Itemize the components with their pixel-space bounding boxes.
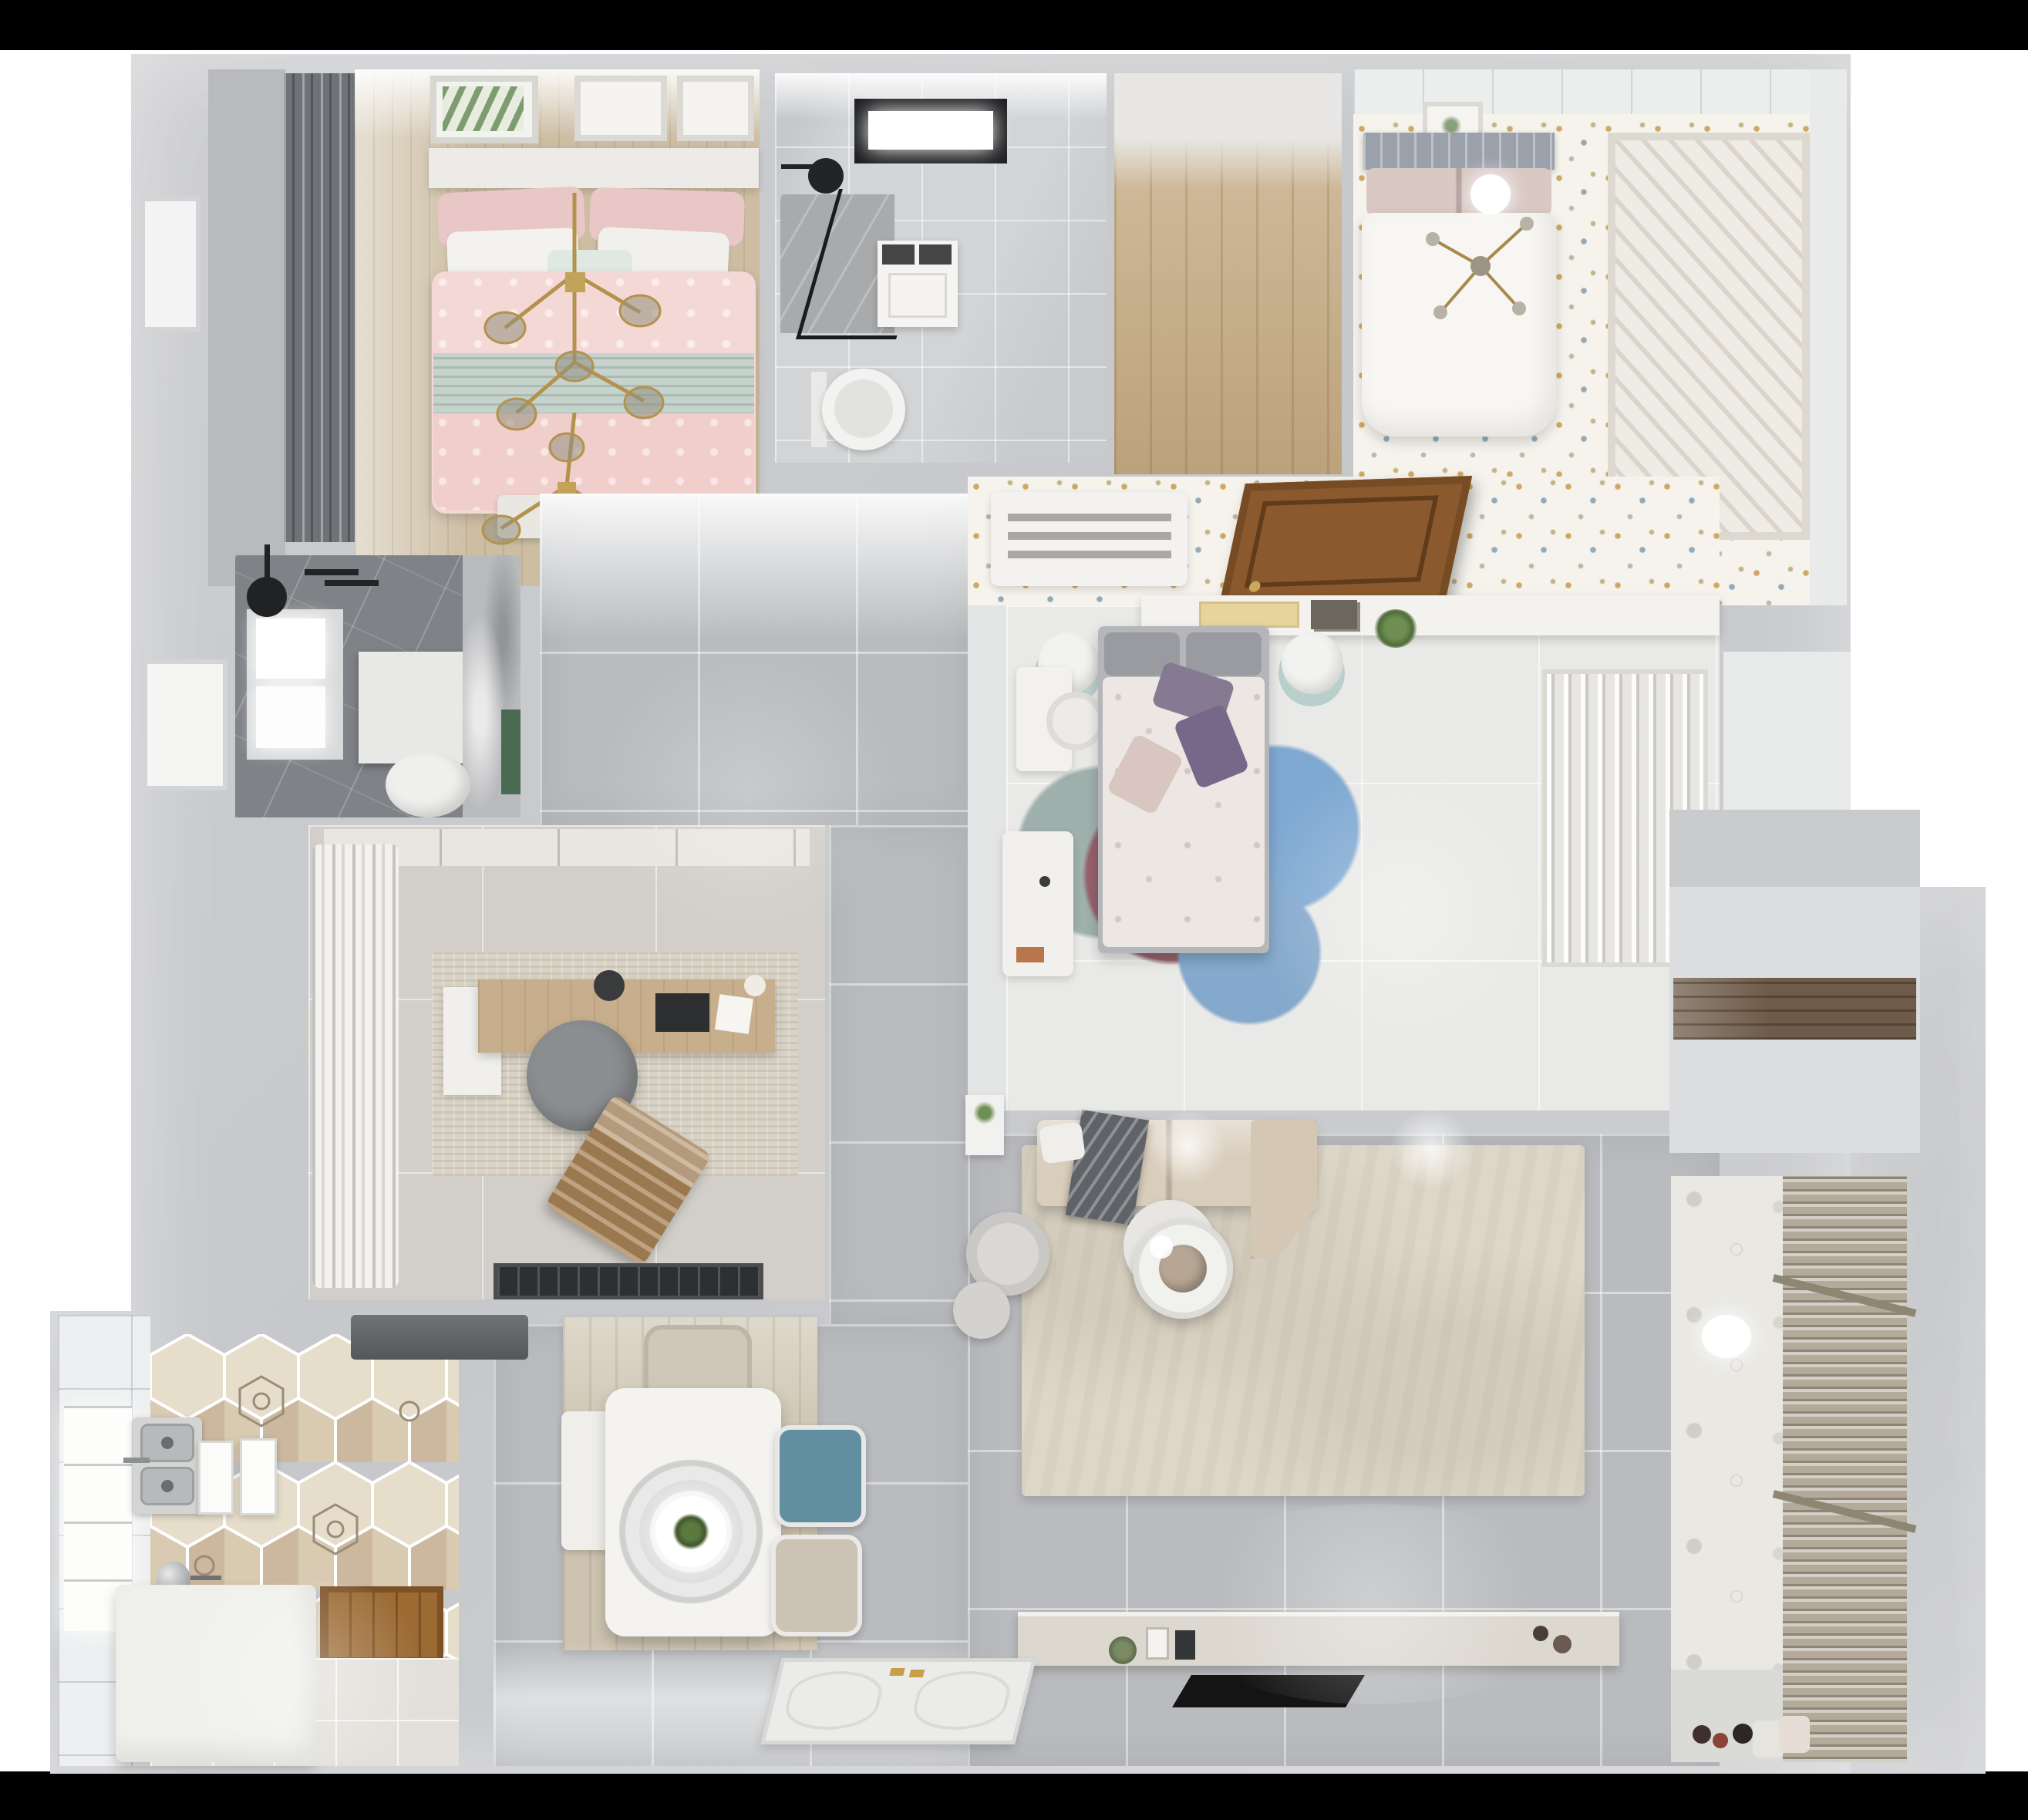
- shelf-plant: [1374, 609, 1417, 648]
- counter-island-overlap: [116, 1585, 316, 1762]
- sink-drain-2: [161, 1480, 173, 1492]
- bed-white-headboard: [1363, 133, 1555, 170]
- coffee-table: [1133, 1218, 1233, 1319]
- console-bottle-2: [1553, 1635, 1572, 1653]
- bedroom-center-left-wall: [964, 605, 1006, 1111]
- room-storage: [1669, 810, 1920, 1153]
- top-black-band: [0, 0, 2028, 50]
- toilet: [811, 369, 910, 452]
- green-accent-panel: [501, 709, 520, 794]
- storage-upper-wall: [1669, 810, 1920, 887]
- vanity-unit: [878, 241, 958, 327]
- console-bottle-1: [1533, 1626, 1548, 1641]
- vanity-drawer-2: [919, 244, 952, 265]
- bedroom-white-right-wall: [1810, 69, 1847, 605]
- desk-plate: [744, 975, 766, 996]
- cross-chandelier: [1411, 197, 1550, 335]
- desk-mug: [594, 970, 625, 1001]
- bathroom-dark-window-light-2: [256, 686, 325, 748]
- side-table-plant: [965, 1095, 1004, 1155]
- tv-console: [1018, 1612, 1619, 1666]
- ac-vent-grille: [1008, 504, 1171, 558]
- bathroom-window-light: [868, 111, 993, 150]
- sofa-light-glow-2: [1380, 1111, 1481, 1188]
- sofa-pillow-white: [1039, 1121, 1086, 1164]
- dining-chair-teal: [775, 1425, 866, 1527]
- balcony-towels: [1779, 1716, 1810, 1753]
- sink-unit: [133, 1417, 202, 1514]
- toilet-seat: [834, 379, 893, 438]
- venetian-blinds: [1783, 1176, 1907, 1762]
- pendant-plant: [672, 1513, 709, 1550]
- corridor-upper-glow: [540, 494, 968, 640]
- toilet-dark-bath: [386, 752, 470, 817]
- bedroom-pink-curtains: [284, 73, 355, 542]
- wall-frame-botanical: [430, 76, 538, 143]
- bed-center-duvet: [1103, 677, 1265, 947]
- vanity-drawer-1: [882, 244, 915, 265]
- room-kitchen: [58, 1315, 494, 1766]
- console-frame-1: [1146, 1627, 1169, 1660]
- shelf-books-dark: [1311, 600, 1357, 629]
- shelf-folder-yellow: [1199, 602, 1299, 628]
- dresser-decor-dot: [1039, 876, 1050, 887]
- dining-bench: [561, 1411, 611, 1550]
- tv-panel: [1172, 1675, 1365, 1707]
- dark-shower-head-icon: [247, 577, 287, 617]
- balcony-ceiling-light: [1702, 1315, 1751, 1358]
- bedroom-pink-window-wall: [208, 69, 285, 586]
- wall-frame-2: [574, 76, 667, 141]
- desk-paper: [715, 994, 753, 1034]
- side-table-plant-leaves: [973, 1101, 996, 1124]
- entrance-door-handles: [889, 1668, 905, 1676]
- open-wood-door: [1218, 476, 1472, 613]
- bathroom-dark-window: [247, 609, 343, 760]
- bedroom-center-dresser: [1002, 831, 1073, 976]
- sink-basin-2: [140, 1467, 194, 1505]
- botanical-art: [443, 86, 524, 131]
- room-walkin-closet: [1114, 73, 1342, 474]
- room-balcony: [1671, 1176, 1907, 1762]
- room-study: [308, 825, 825, 1299]
- shower-head-icon: [808, 158, 844, 194]
- standing-panel-1: [198, 1441, 234, 1515]
- bed-center-pillow-2: [1186, 632, 1262, 676]
- dark-shower-rod: [264, 544, 270, 581]
- room-bathroom-main: [775, 73, 1107, 463]
- bathroom-window: [854, 99, 1007, 163]
- vanity-basin: [888, 273, 947, 318]
- bed-center: [1098, 626, 1269, 953]
- entrance-door-panel-left: [780, 1671, 888, 1730]
- floor-toy-2: [1713, 1733, 1728, 1748]
- entrance-door-panel-right: [908, 1671, 1016, 1730]
- ac-vent: [991, 492, 1187, 586]
- wood-threshold: [320, 1586, 443, 1663]
- console-plant-disc: [1109, 1636, 1137, 1664]
- door-leaf-left: [143, 659, 227, 790]
- door-leaf-top-left: [140, 197, 200, 332]
- floorplan-render: [0, 0, 2028, 1820]
- bottom-black-band: [0, 1771, 2028, 1820]
- sink-basin-1: [140, 1424, 194, 1462]
- sink-drain-1: [161, 1437, 173, 1449]
- console-frame-2: [1175, 1630, 1195, 1660]
- wall-frame-3: [677, 76, 754, 141]
- entrance-door: [760, 1658, 1036, 1744]
- coffee-table-highlight: [1150, 1235, 1173, 1259]
- floor-toy-3: [1733, 1724, 1753, 1744]
- study-curtains: [312, 844, 399, 1288]
- study-doormat: [494, 1263, 763, 1299]
- toilet-bowl: [822, 369, 905, 450]
- sink-faucet: [123, 1458, 150, 1463]
- closet-ceiling-band: [1114, 73, 1342, 189]
- bedside-stool-right: [1282, 632, 1343, 694]
- bathroom-dark-window-light-1: [256, 618, 325, 679]
- dresser-copper-item: [1016, 947, 1044, 962]
- ottoman: [953, 1282, 1010, 1339]
- door-panel: [1245, 495, 1439, 588]
- desk-laptop: [655, 993, 709, 1032]
- dark-fixtures: [305, 569, 359, 575]
- dining-chair-beige: [771, 1535, 862, 1636]
- room-bathroom-dark: [235, 555, 520, 817]
- corridor-mid: [829, 825, 968, 1324]
- desk-chair: [1046, 692, 1105, 750]
- sofa-light-glow-1: [1141, 1111, 1234, 1184]
- counter-spout: [190, 1576, 221, 1580]
- standing-panel-2: [240, 1438, 277, 1515]
- floor-toy-1: [1693, 1725, 1711, 1744]
- storage-wood-shelf: [1673, 978, 1916, 1040]
- shower-arm: [781, 164, 827, 169]
